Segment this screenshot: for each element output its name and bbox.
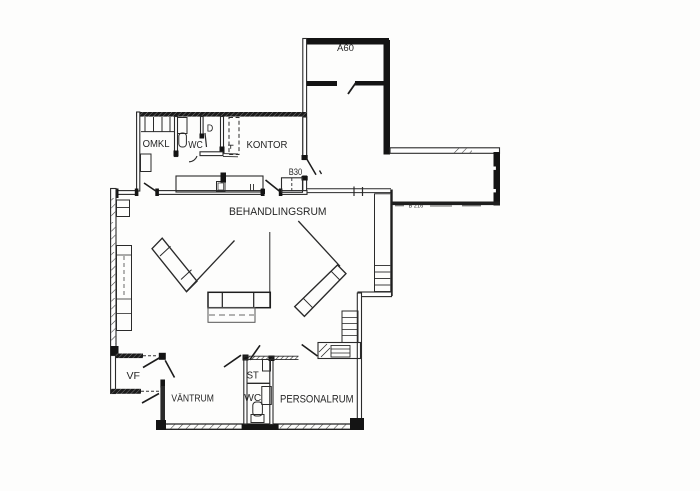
svg-text:B30: B30 <box>289 167 303 178</box>
svg-text:PERSONALRUM: PERSONALRUM <box>280 393 354 405</box>
svg-text:OMKL: OMKL <box>143 138 170 150</box>
svg-text:D: D <box>207 123 214 135</box>
svg-text:A60: A60 <box>337 43 354 54</box>
svg-text:KONTOR: KONTOR <box>247 139 288 151</box>
svg-text:WC: WC <box>244 392 261 404</box>
svg-text:WC: WC <box>188 139 203 151</box>
svg-text:VÄNTRUM: VÄNTRUM <box>171 392 214 404</box>
svg-text:VF: VF <box>127 370 141 382</box>
svg-text:BEHANDLINGSRUM: BEHANDLINGSRUM <box>229 206 327 218</box>
svg-text:B 216: B 216 <box>409 204 424 210</box>
svg-text:ST: ST <box>247 370 260 382</box>
